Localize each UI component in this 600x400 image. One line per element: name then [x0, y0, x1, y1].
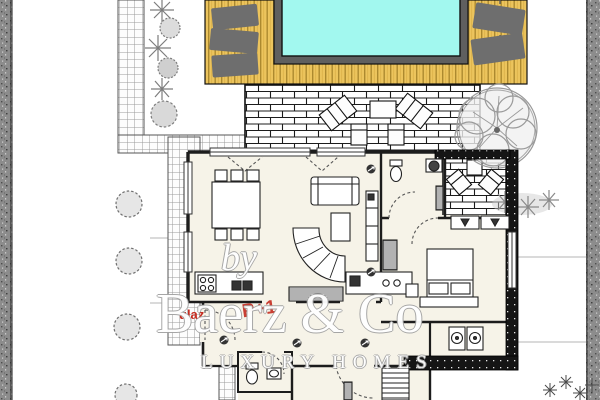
hedge-bushes	[114, 191, 142, 400]
washing-machine	[449, 327, 465, 350]
pillow	[451, 283, 470, 294]
sun-lounger	[209, 28, 259, 54]
kitchen-sink	[232, 281, 241, 290]
hedge-bush	[114, 314, 140, 340]
wc-sink	[267, 368, 281, 379]
kitchen-counter	[195, 272, 263, 294]
planting-row	[145, 0, 180, 127]
tv-cabinet	[366, 191, 378, 261]
window	[210, 148, 310, 156]
radiator	[436, 186, 443, 210]
terrace-chair	[351, 124, 367, 145]
bed-bench	[420, 297, 478, 307]
spiky-plant	[145, 35, 171, 61]
tree-trunk	[494, 127, 500, 133]
kitchen-island	[346, 272, 412, 294]
spiky-plant	[151, 78, 173, 100]
window	[184, 162, 192, 214]
washing-machine	[467, 327, 483, 350]
site-plan-drawing	[0, 0, 600, 400]
window	[317, 148, 365, 156]
ceiling-light	[361, 339, 370, 348]
tv-bench	[289, 287, 343, 301]
stair-wall	[344, 382, 352, 400]
hedge-bush	[115, 384, 137, 400]
swimming-pool	[274, 0, 468, 64]
brick-terrace	[245, 85, 480, 152]
road-strip-right	[586, 0, 600, 400]
ceiling-light	[293, 339, 302, 348]
pillow	[429, 283, 448, 294]
window	[184, 232, 192, 272]
coffee-table	[331, 213, 350, 241]
dining-table	[212, 182, 260, 228]
ceiling-light	[367, 268, 376, 277]
bathroom-sink	[429, 161, 439, 171]
terrace-chair	[388, 124, 404, 145]
sofa	[311, 177, 359, 205]
ceiling-light	[220, 336, 229, 345]
terrace-table	[370, 101, 396, 118]
floor-plan-page: ulaz P+1 by Baerz & Co LUXURY HOMES	[0, 0, 600, 400]
toilet	[390, 160, 402, 182]
hedge-bush	[116, 248, 142, 274]
shrub	[151, 101, 177, 127]
pool-water	[282, 0, 460, 56]
wc-toilet	[246, 363, 258, 384]
shrub	[158, 58, 178, 78]
sun-lounger	[211, 52, 258, 77]
nightstand	[406, 284, 418, 297]
ceiling-light	[367, 165, 376, 174]
kitchen-sink	[243, 281, 252, 290]
bed	[420, 249, 478, 307]
wardrobe	[383, 240, 397, 270]
hedge-bush	[116, 191, 142, 217]
shrub	[160, 18, 180, 38]
window	[508, 232, 516, 288]
